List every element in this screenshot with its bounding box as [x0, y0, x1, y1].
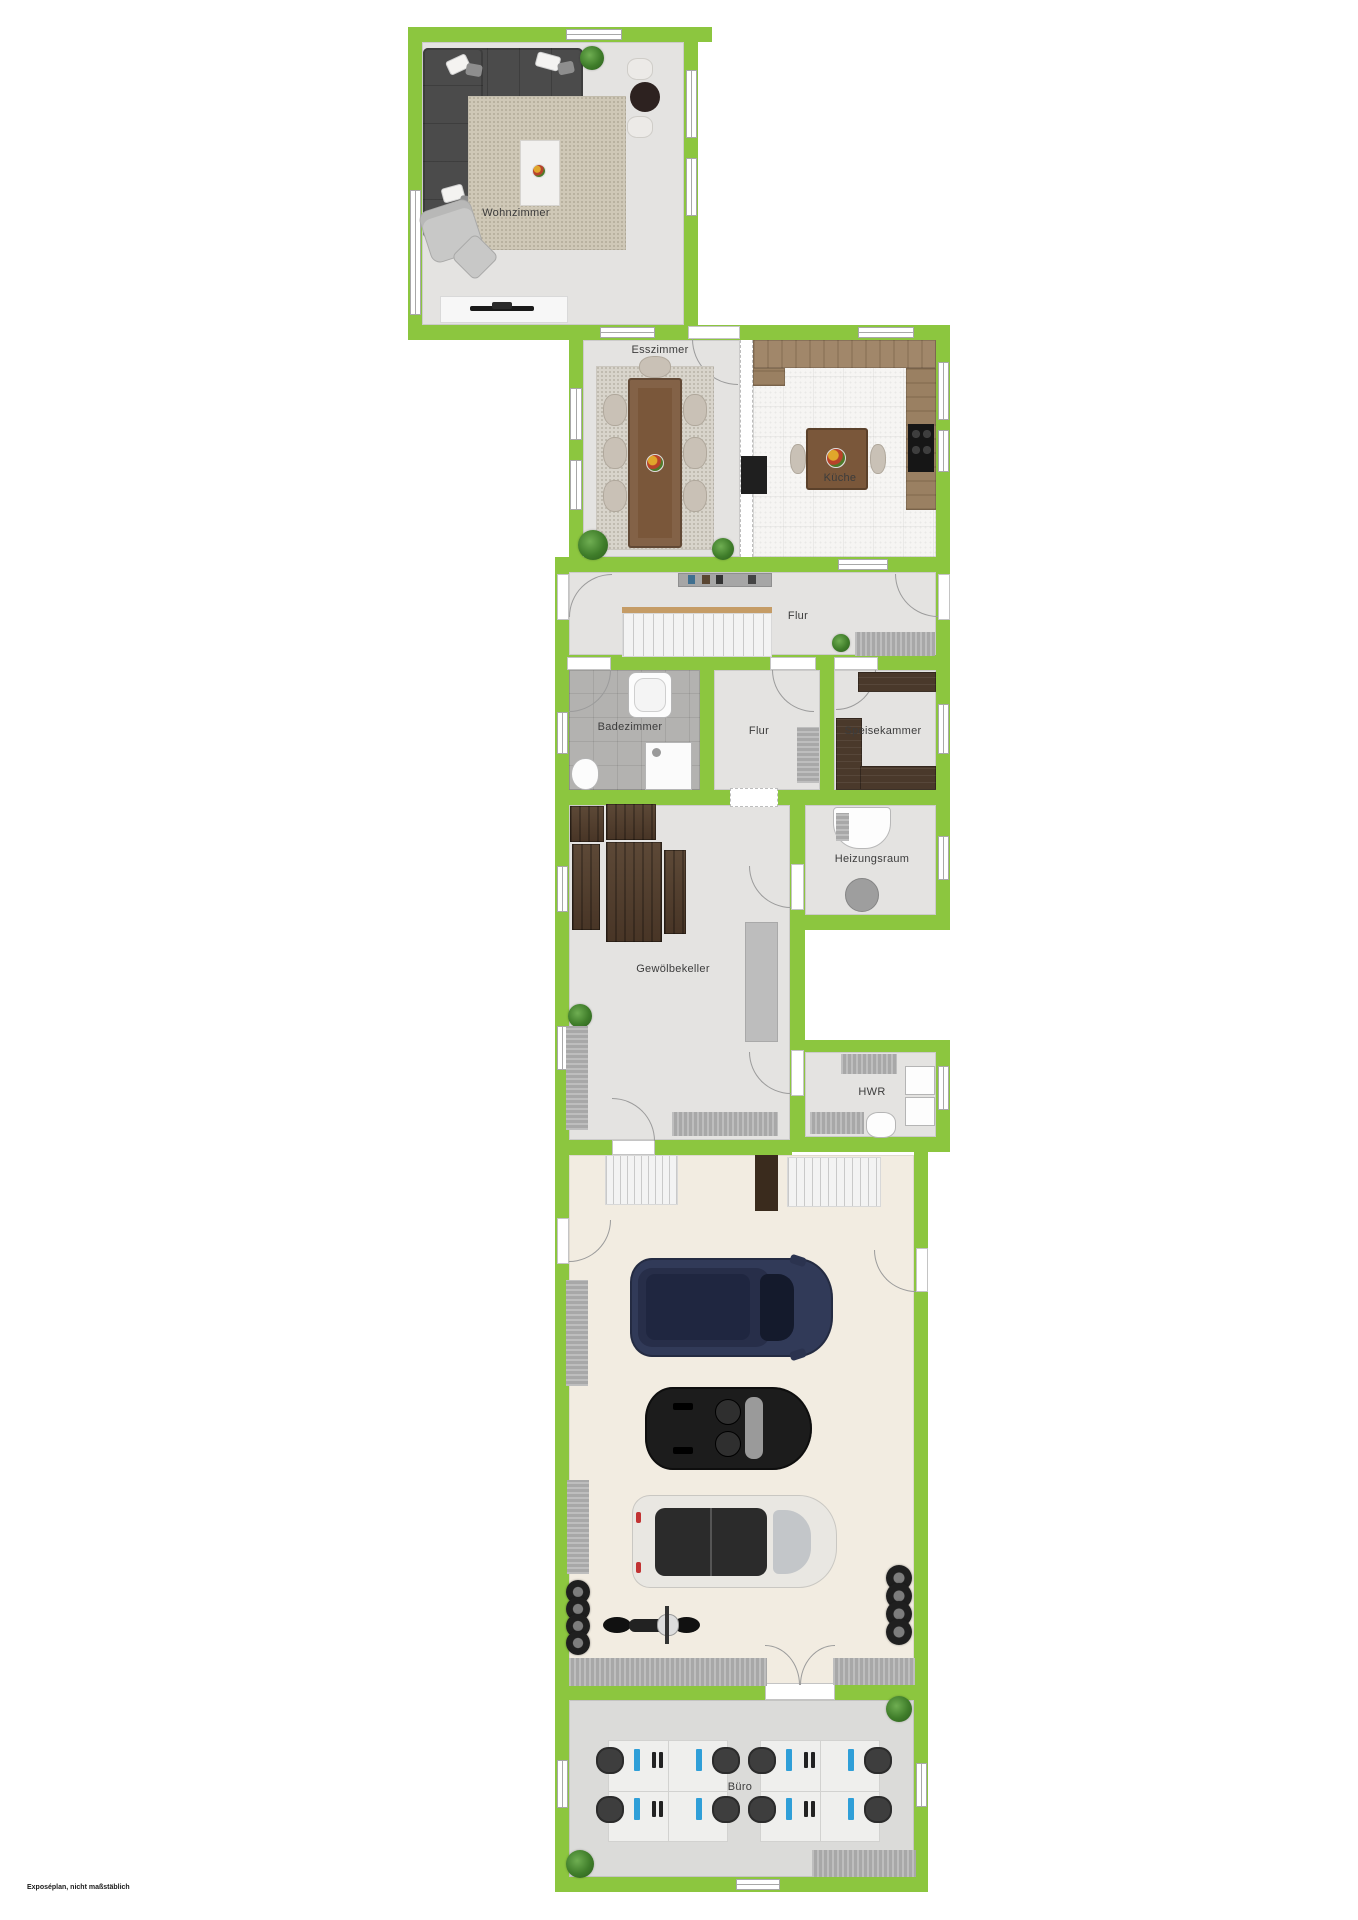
keyboard	[652, 1801, 656, 1817]
keyboard	[804, 1801, 808, 1817]
tv-stand	[492, 302, 512, 309]
keyboard	[811, 1752, 815, 1768]
shoes	[716, 575, 723, 584]
utility-counter	[810, 1112, 864, 1134]
door	[557, 1218, 569, 1264]
utility-sink	[866, 1112, 896, 1138]
window	[570, 388, 582, 440]
wall	[408, 27, 712, 42]
desk-cluster	[760, 1740, 880, 1842]
washing-machine	[905, 1066, 935, 1095]
car-seat	[715, 1399, 741, 1425]
window	[938, 704, 949, 754]
shoes	[748, 575, 756, 584]
window	[570, 460, 582, 510]
window	[736, 1879, 780, 1890]
plan-disclaimer: Exposéplan, nicht maßstäblich	[27, 1884, 130, 1891]
pantry-shelf	[858, 672, 936, 692]
car-sports	[645, 1387, 812, 1470]
dining-chair	[603, 480, 627, 512]
door	[938, 574, 950, 620]
garage-entry-door	[765, 1683, 835, 1700]
door	[612, 1140, 655, 1155]
wall-opening	[730, 788, 778, 807]
keyboard	[652, 1752, 656, 1768]
motorcycle-handlebar	[665, 1606, 669, 1644]
window	[938, 430, 949, 472]
car-windshield	[745, 1397, 763, 1459]
dining-chair	[683, 394, 707, 426]
office-chair	[864, 1796, 892, 1823]
fruit-bowl	[646, 454, 664, 472]
wall	[790, 1040, 950, 1052]
monitor	[848, 1798, 854, 1820]
door	[770, 657, 816, 670]
monitor	[696, 1749, 702, 1771]
open-partition	[740, 340, 753, 557]
door	[791, 864, 804, 910]
workbench	[569, 1658, 767, 1686]
door	[834, 657, 878, 670]
plant	[580, 46, 604, 70]
room-label: Gewölbekeller	[636, 963, 710, 975]
shoes	[688, 575, 695, 584]
car-taillight	[636, 1512, 641, 1523]
room-label: Heizungsraum	[835, 853, 910, 865]
wooden-shelf	[664, 850, 686, 934]
monitor	[634, 1798, 640, 1820]
door	[791, 1050, 804, 1096]
office-chair	[748, 1747, 776, 1774]
window	[858, 327, 914, 338]
room-label: HWR	[858, 1086, 885, 1098]
doormat	[855, 632, 935, 656]
office-chair	[596, 1747, 624, 1774]
room-label: Flur	[788, 610, 808, 622]
chimney-block	[745, 922, 778, 1042]
water-tank	[845, 878, 879, 912]
garage-shelf	[567, 1480, 589, 1574]
boiler-panel	[836, 813, 849, 841]
side-chair	[627, 58, 653, 80]
car-taillight	[636, 1562, 641, 1573]
window	[557, 712, 568, 754]
window	[686, 158, 697, 216]
office-chair	[748, 1796, 776, 1823]
plant	[712, 538, 734, 560]
monitor	[848, 1749, 854, 1771]
dining-chair	[683, 437, 707, 469]
kitchen-chair	[870, 444, 886, 474]
wooden-shelf	[606, 804, 656, 840]
toilet	[571, 758, 599, 790]
monitor	[786, 1749, 792, 1771]
dining-chair	[603, 394, 627, 426]
car-windshield	[773, 1510, 811, 1574]
keyboard	[811, 1801, 815, 1817]
car-suv	[630, 1258, 833, 1357]
wall	[555, 655, 950, 670]
wall	[790, 915, 950, 930]
plant	[566, 1850, 594, 1878]
keyboard	[804, 1752, 808, 1768]
car-roof-glass	[655, 1508, 767, 1576]
monitor	[786, 1798, 792, 1820]
car-seat	[715, 1431, 741, 1457]
dining-chair	[683, 480, 707, 512]
wooden-table	[606, 842, 662, 942]
fruit-bowl	[532, 164, 546, 178]
keyboard	[659, 1801, 663, 1817]
side-chair	[627, 116, 653, 138]
monitor	[696, 1798, 702, 1820]
doormat	[812, 1850, 916, 1877]
wall	[820, 670, 834, 790]
pillow	[465, 63, 483, 78]
door	[567, 657, 611, 670]
round-table	[630, 82, 660, 112]
dining-chair	[639, 356, 671, 378]
car-wagon	[632, 1495, 837, 1588]
wall	[555, 1140, 612, 1155]
wall	[914, 1152, 928, 1700]
office-chair	[712, 1747, 740, 1774]
wall	[555, 557, 950, 572]
office-chair	[596, 1796, 624, 1823]
door	[916, 1248, 928, 1292]
window	[686, 70, 697, 138]
stair-divider	[755, 1155, 778, 1211]
car-vent	[673, 1447, 693, 1454]
room-label: Flur	[749, 725, 769, 737]
room-label: Esszimmer	[631, 344, 688, 356]
tire-stack	[886, 1619, 912, 1645]
plant	[578, 530, 608, 560]
runner-rug	[566, 1026, 588, 1130]
car-roof-glass	[646, 1274, 750, 1340]
motorcycle-wheel	[603, 1617, 631, 1633]
plant	[568, 1004, 592, 1028]
plant	[832, 634, 850, 652]
door	[557, 574, 569, 620]
room-label: Wohnzimmer	[482, 207, 550, 219]
workbench	[833, 1658, 915, 1685]
utility-counter	[841, 1054, 897, 1074]
window	[938, 362, 949, 420]
kitchen-counter	[753, 368, 785, 386]
dining-chair	[603, 437, 627, 469]
wall	[655, 1140, 792, 1155]
office-chair	[864, 1747, 892, 1774]
office-chair	[712, 1796, 740, 1823]
dryer	[905, 1097, 935, 1126]
garage-staircase	[605, 1155, 678, 1205]
window	[566, 29, 622, 40]
desk-cluster	[608, 1740, 728, 1842]
car-vent	[673, 1403, 693, 1410]
floor-plan: Wohnzimmer Esszimmer Küche Flur Badezimm…	[0, 0, 1358, 1920]
garage-staircase	[787, 1157, 881, 1207]
keyboard	[659, 1752, 663, 1768]
kitchen-chair	[790, 444, 806, 474]
window	[600, 327, 655, 338]
car-windshield	[760, 1274, 794, 1341]
room-label: Büro	[728, 1781, 752, 1793]
window	[410, 190, 421, 315]
refrigerator	[741, 456, 767, 494]
window	[938, 1066, 949, 1110]
wall	[790, 805, 805, 1150]
room-label: Küche	[824, 472, 857, 484]
wooden-shelf	[572, 844, 600, 930]
tire-stack	[566, 1631, 590, 1655]
motorcycle	[603, 1602, 700, 1648]
shower-head	[652, 748, 661, 757]
fruit-bowl	[826, 448, 846, 468]
staircase	[622, 613, 772, 657]
wall	[790, 1137, 950, 1152]
monitor	[634, 1749, 640, 1771]
room-label: Speisekammer	[845, 725, 922, 737]
window	[916, 1763, 927, 1807]
wall	[569, 340, 583, 557]
shoes	[702, 575, 710, 584]
garage-shelf	[566, 1280, 588, 1386]
room-label: Badezimmer	[598, 721, 663, 733]
plant	[886, 1696, 912, 1722]
window	[557, 866, 568, 912]
window	[838, 559, 888, 570]
doormat	[672, 1112, 778, 1136]
doormat	[797, 727, 819, 783]
bathtub-basin	[634, 678, 666, 712]
stove	[908, 424, 934, 472]
window	[938, 836, 949, 880]
wall	[555, 1685, 928, 1700]
door	[688, 326, 740, 339]
window	[557, 1760, 568, 1808]
wooden-shelf	[570, 806, 604, 842]
kitchen-counter	[753, 340, 936, 368]
pantry-shelf	[860, 766, 936, 790]
wall	[700, 670, 714, 790]
